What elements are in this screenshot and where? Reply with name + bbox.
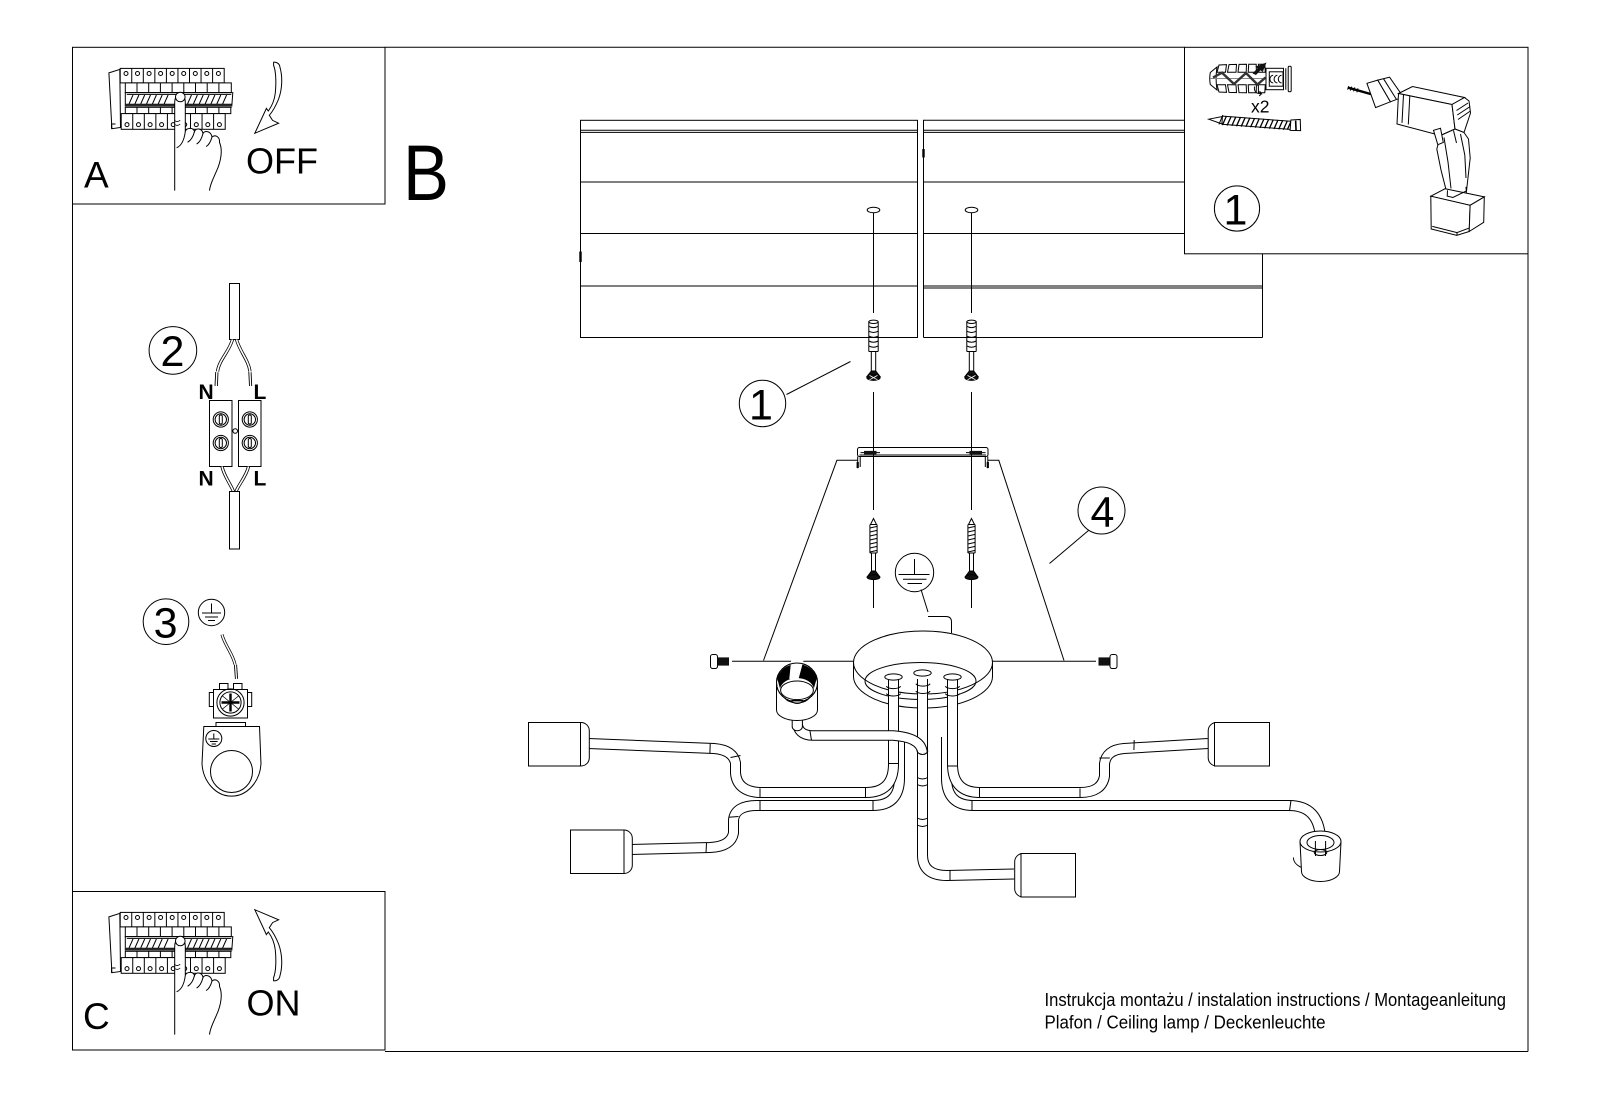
svg-text:Plafon / Ceiling lamp / Decken: Plafon / Ceiling lamp / Deckenleuchte <box>1045 1012 1326 1033</box>
svg-text:ON: ON <box>247 983 301 1024</box>
svg-text:x2: x2 <box>1251 97 1269 117</box>
svg-text:Instrukcja montażu / instalati: Instrukcja montażu / instalation instruc… <box>1045 989 1507 1010</box>
svg-text:N: N <box>199 468 214 491</box>
svg-text:A: A <box>84 155 109 196</box>
svg-text:B: B <box>403 128 449 217</box>
svg-text:1: 1 <box>749 381 773 429</box>
svg-text:1: 1 <box>1224 186 1248 234</box>
svg-text:3: 3 <box>154 599 178 647</box>
svg-text:L: L <box>254 468 267 491</box>
svg-text:C: C <box>83 996 110 1037</box>
svg-text:OFF: OFF <box>246 141 318 182</box>
svg-text:2: 2 <box>160 328 184 376</box>
svg-text:4: 4 <box>1091 488 1115 536</box>
